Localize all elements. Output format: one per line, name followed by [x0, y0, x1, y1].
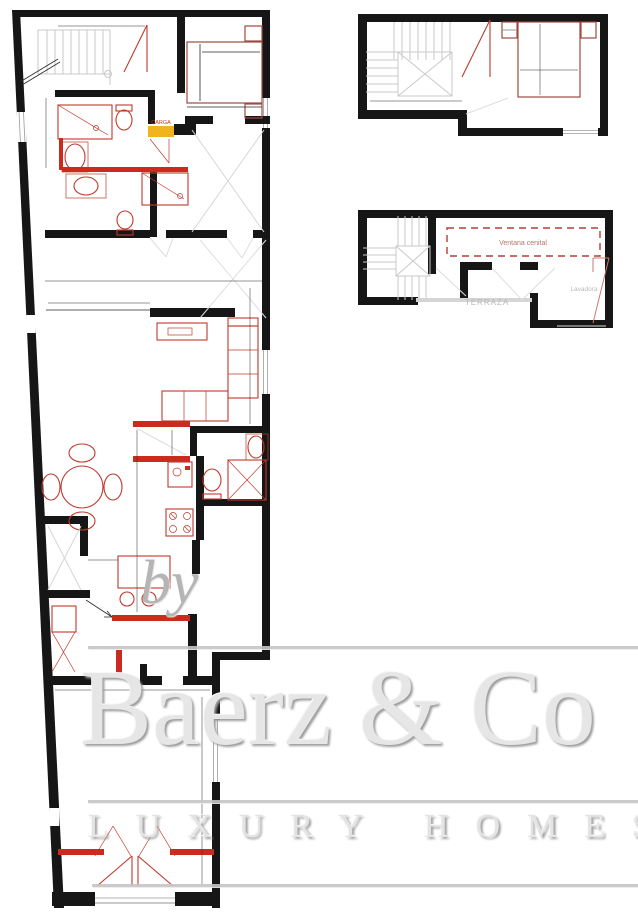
living-room	[42, 310, 258, 530]
terraza-label: TERRAZA	[465, 298, 509, 307]
stair-arrow	[124, 25, 147, 72]
bathroom-lower	[66, 173, 188, 235]
exterior-walls	[358, 14, 608, 136]
terrace: TERRAZA	[416, 268, 606, 326]
nightstand	[245, 26, 262, 41]
toilet	[203, 469, 221, 491]
bed	[187, 42, 262, 103]
bathroom-middle	[203, 434, 268, 500]
sliding-door	[133, 456, 190, 462]
staircase	[366, 22, 462, 101]
toilet	[116, 110, 132, 130]
toilet	[117, 211, 133, 229]
sofa	[162, 391, 228, 421]
bedroom-top	[187, 26, 262, 118]
sink	[65, 144, 85, 170]
lavadora-label: Lavadora	[570, 286, 597, 293]
laundry: Lavadora	[570, 258, 609, 323]
main-floor-plan: CARGA	[12, 10, 271, 908]
nightstand	[581, 22, 596, 38]
staircase	[20, 30, 112, 85]
sliding-door	[112, 615, 190, 621]
watermark-divider-bottom	[92, 884, 638, 887]
kitchen-island	[118, 556, 170, 588]
ventana-cenital-label: Ventana cenital	[499, 240, 547, 247]
floor-plan-drawing: CARGA	[0, 0, 638, 922]
carga-highlight	[148, 126, 174, 137]
tv-cabinet	[157, 323, 207, 340]
floor-plan-sheet: CARGA	[0, 0, 638, 922]
entry-double-door	[97, 856, 173, 886]
dimension-lines	[45, 26, 262, 903]
interior-walls	[40, 17, 270, 685]
sliding-door	[133, 421, 190, 427]
upper-level-plan	[358, 14, 608, 136]
bedroom	[502, 22, 596, 97]
handrail	[20, 59, 60, 85]
staircase	[363, 216, 430, 300]
roof-terrace-plan: Ventana cenital TERRAZA Lavadora	[358, 210, 613, 328]
carga-label: CARGA	[151, 120, 171, 126]
shower	[142, 173, 188, 205]
watermark-divider-middle	[88, 800, 638, 803]
sink	[74, 177, 98, 195]
bottom-room	[58, 826, 214, 886]
watermark-divider-top	[88, 646, 638, 649]
nightstand	[245, 104, 262, 118]
stair-arrow	[462, 20, 490, 77]
carga-shaft: CARGA	[148, 120, 174, 163]
skylight: Ventana cenital	[447, 228, 600, 256]
bed	[518, 22, 580, 97]
windows	[563, 128, 598, 136]
chaise-sofa	[228, 326, 258, 398]
kitchen	[86, 462, 193, 621]
sink	[248, 436, 264, 458]
void-cross-marks	[150, 130, 266, 318]
